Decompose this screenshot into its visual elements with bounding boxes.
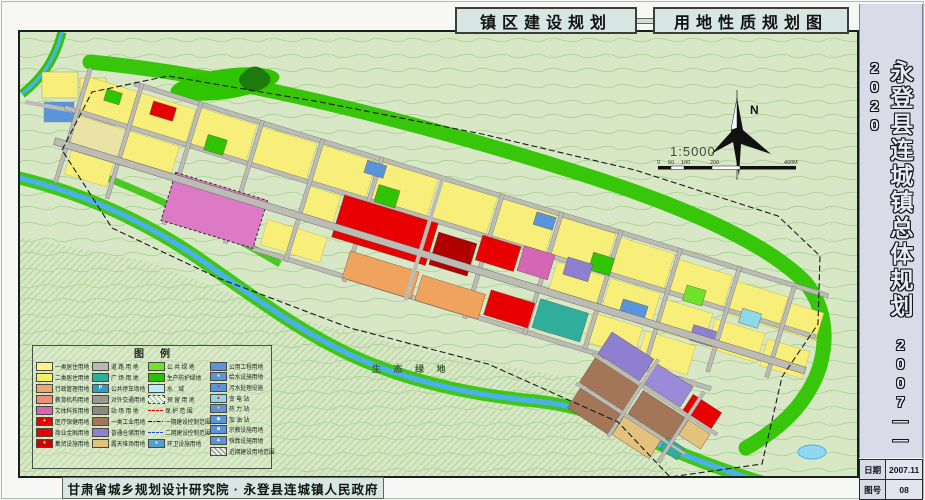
tab-construction-plan: 镇区建设规划 — [455, 7, 637, 34]
plan-sheet: 镇区建设规划 用地性质规划图 — [0, 0, 925, 500]
legend-swatch: ▲ — [210, 436, 227, 445]
legend-item: 普通仓储用地 — [92, 427, 148, 438]
legend-swatch — [92, 362, 109, 371]
legend-item-label: 广 场 用 地 — [111, 373, 139, 382]
north-label: N — [750, 103, 759, 117]
legend-item-label: 二类居住用地 — [55, 373, 89, 382]
legend-item-label: 公用工程用地 — [229, 362, 263, 371]
legend-item: 预 留 用 地 — [148, 394, 210, 405]
tab-landuse-map: 用地性质规划图 — [653, 7, 849, 34]
title-sidebar: 永登县连城镇总体规划 2007——2020 — [859, 4, 923, 458]
legend-item-label: 一类居住用地 — [55, 362, 89, 371]
scale-tick: 100 — [681, 160, 690, 166]
legend-item: ●给水设施用地 — [210, 372, 274, 383]
legend-item-label: 商业金融用地 — [55, 428, 89, 437]
legend-item: 道 路 用 地 — [92, 361, 148, 372]
scale-tick: 50 — [668, 160, 674, 166]
legend-item: 公 共 绿 地 — [148, 361, 210, 372]
legend-item: ◆加 油 站 — [210, 414, 274, 425]
legend-item-label: 文体科技用地 — [55, 406, 89, 415]
eco-green-label: 生 态 绿 地 — [372, 363, 451, 374]
legend-item-label: 公共停车场地 — [111, 384, 145, 393]
legend-item-label: 露天堆场用地 — [111, 439, 145, 448]
plan-title-vertical: 永登县连城镇总体规划 2007——2020 — [865, 4, 917, 458]
legend-item: ●热 力 站 — [210, 403, 274, 414]
legend-item: 水 域 — [148, 383, 210, 394]
sheet-number-value: 08 — [886, 480, 923, 500]
legend-item-label: 站 场 用 地 — [111, 406, 139, 415]
legend-swatch — [36, 373, 53, 382]
legend-item-label: 加 油 站 — [229, 415, 249, 424]
legend-item-label: 热 力 站 — [229, 404, 249, 413]
legend-item: ●环卫设施用地 — [148, 438, 210, 449]
legend-item-label: 近期建设用地范围 — [229, 447, 275, 456]
legend-swatch: ● — [210, 404, 227, 413]
legend-swatch — [148, 410, 163, 411]
legend-swatch: ■ — [210, 425, 227, 434]
legend-item-label: 行政管理用地 — [55, 384, 89, 393]
legend-swatch — [36, 406, 53, 415]
legend-item: ●污水处理设施 — [210, 382, 274, 393]
legend-item-label: 变 电 站 — [229, 394, 249, 403]
legend-column: 公用工程用地●给水设施用地●污水处理设施▲变 电 站●热 力 站◆加 油 站■宗… — [210, 361, 274, 456]
legend-swatch — [36, 384, 53, 393]
legend-swatch — [36, 395, 53, 404]
legend-item: 广 场 用 地 — [92, 372, 148, 383]
legend-item: 露天堆场用地 — [92, 438, 148, 449]
legend-swatch — [148, 432, 163, 433]
legend-item: ■宗教设施用地 — [210, 425, 274, 436]
legend-title: 图例 — [36, 348, 268, 361]
legend-item-label: 对外交通用地 — [111, 395, 145, 404]
legend-item: 二类居住用地 — [36, 372, 92, 383]
legend-item-label: 水 域 — [167, 384, 184, 393]
map-frame: 生 态 绿 地 N 1:5000 0 50 100 200 400M — [18, 30, 859, 478]
legend-item-label: 医疗保健用地 — [55, 417, 89, 426]
legend-swatch — [92, 395, 109, 404]
legend-swatch — [92, 417, 109, 426]
legend-item-label: 一类工业用地 — [111, 417, 145, 426]
legend-item-label: 普通仓储用地 — [111, 428, 145, 437]
legend-item: 一类工业用地 — [92, 416, 148, 427]
legend-swatch — [148, 421, 163, 423]
legend-swatch — [148, 395, 165, 404]
legend-swatch: ● — [210, 383, 227, 392]
legend-item: ▲殡葬设施用地 — [210, 435, 274, 446]
legend-swatch — [210, 362, 227, 371]
legend-body: 一类居住用地二类居住用地行政管理用地教育机构用地文体科技用地+医疗保健用地商业金… — [36, 361, 268, 456]
credit-bar: 甘肃省城乡规划设计研究院 · 永登县连城镇人民政府 — [62, 477, 384, 499]
legend-item: 一类居住用地 — [36, 361, 92, 372]
legend-item: 一期建设控制范围 — [148, 416, 210, 427]
title-block-table: 日期 2007.11 图号 08 — [859, 459, 923, 500]
table-row: 日期 2007.11 — [860, 460, 923, 480]
legend-swatch: ● — [210, 372, 227, 381]
legend-item-label: 预 留 用 地 — [167, 395, 195, 404]
table-row: 图号 08 — [860, 480, 923, 500]
legend-item: 教育机构用地 — [36, 394, 92, 405]
legend-item: 生产防护绿地 — [148, 372, 210, 383]
legend-swatch: P — [92, 384, 109, 393]
date-label: 日期 — [860, 460, 886, 480]
legend-item: ▲变 电 站 — [210, 393, 274, 404]
legend-column: 道 路 用 地广 场 用 地P公共停车场地对外交通用地站 场 用 地一类工业用地… — [92, 361, 148, 456]
scale-tick: 200 — [710, 160, 719, 166]
legend-item-label: 保 护 范 围 — [165, 406, 193, 415]
legend-item: 对外交通用地 — [92, 394, 148, 405]
legend-column: 公 共 绿 地生产防护绿地水 域预 留 用 地保 护 范 围一期建设控制范围二期… — [148, 361, 210, 456]
legend-item: P公共停车场地 — [92, 383, 148, 394]
legend-swatch: ◆ — [210, 415, 227, 424]
legend-item: ★集贸设施用地 — [36, 438, 92, 449]
scale-tick: 400M — [784, 160, 798, 166]
date-value: 2007.11 — [886, 460, 923, 480]
legend-swatch: ▲ — [210, 394, 227, 403]
legend-item-label: 教育机构用地 — [55, 395, 89, 404]
legend-swatch — [148, 373, 165, 382]
legend-swatch: ★ — [36, 439, 53, 448]
legend-item-label: 二期建设控制范围 — [165, 428, 211, 437]
legend-swatch — [210, 447, 227, 456]
legend-column: 一类居住用地二类居住用地行政管理用地教育机构用地文体科技用地+医疗保健用地商业金… — [36, 361, 92, 456]
legend-item: 行政管理用地 — [36, 383, 92, 394]
legend-item-label: 环卫设施用地 — [167, 439, 201, 448]
legend-swatch — [36, 428, 53, 437]
legend-item: 站 场 用 地 — [92, 405, 148, 416]
legend-item: 保 护 范 围 — [148, 405, 210, 416]
legend-item: 近期建设用地范围 — [210, 446, 274, 457]
legend-swatch — [92, 439, 109, 448]
legend-item-label: 给水设施用地 — [229, 372, 263, 381]
legend-swatch: + — [36, 417, 53, 426]
legend-item-label: 公 共 绿 地 — [167, 362, 195, 371]
legend-swatch — [92, 406, 109, 415]
legend-item-label: 生产防护绿地 — [167, 373, 201, 382]
scale-text: 1:5000 — [670, 144, 716, 159]
legend-item: 商业金融用地 — [36, 427, 92, 438]
legend-item-label: 道 路 用 地 — [111, 362, 139, 371]
legend: 图例 一类居住用地二类居住用地行政管理用地教育机构用地文体科技用地+医疗保健用地… — [32, 345, 272, 469]
legend-swatch — [148, 384, 165, 393]
legend-item-label: 污水处理设施 — [229, 383, 263, 392]
legend-swatch: ● — [148, 439, 165, 448]
legend-item: 二期建设控制范围 — [148, 427, 210, 438]
legend-item-label: 一期建设控制范围 — [165, 417, 211, 426]
scale-tick: 0 — [657, 160, 660, 166]
legend-item-label: 殡葬设施用地 — [229, 436, 263, 445]
sheet-number-label: 图号 — [860, 480, 886, 500]
legend-swatch — [148, 362, 165, 371]
legend-swatch — [92, 373, 109, 382]
plan-title: 永登县连城镇总体规划 — [887, 60, 913, 320]
legend-item: +医疗保健用地 — [36, 416, 92, 427]
legend-item-label: 集贸设施用地 — [55, 439, 89, 448]
legend-swatch — [92, 428, 109, 437]
legend-swatch — [36, 362, 53, 371]
legend-item-label: 宗教设施用地 — [229, 425, 263, 434]
legend-item: 公用工程用地 — [210, 361, 274, 372]
legend-item: 文体科技用地 — [36, 405, 92, 416]
